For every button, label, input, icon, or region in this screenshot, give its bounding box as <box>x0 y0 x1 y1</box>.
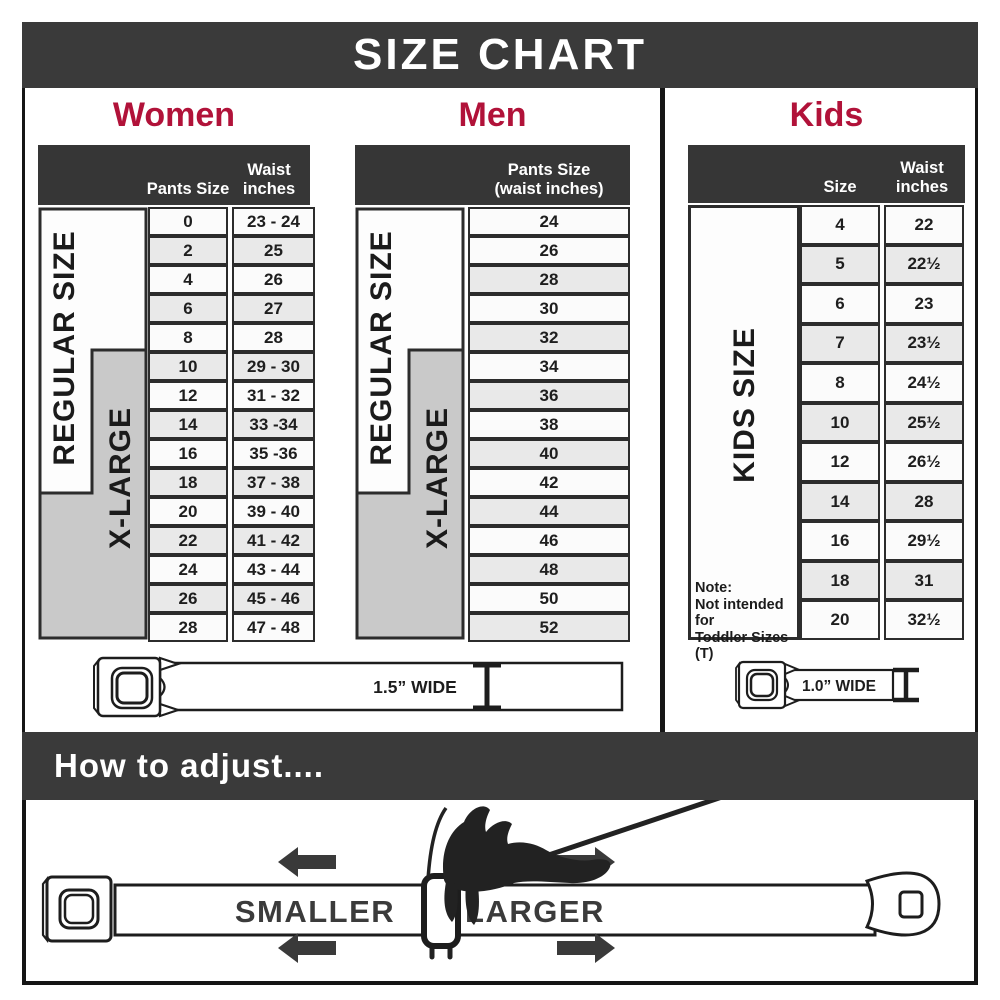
kids-col-size: Size <box>800 178 880 197</box>
how-to-adjust-bar: How to adjust.... <box>22 732 978 800</box>
women-col-waist: Waistinches <box>228 161 310 199</box>
pants-size-cell: 50 <box>468 584 630 613</box>
kids-waist-line1: Waist <box>900 159 943 177</box>
waist-cell: 41 - 42 <box>232 526 315 555</box>
table-row: 1629½ <box>800 521 964 561</box>
waist-cell: 37 - 38 <box>232 468 315 497</box>
waist-cell: 25½ <box>884 403 964 443</box>
adjust-illustration: SMALLER LARGER <box>22 800 978 981</box>
pants-size-cell: 34 <box>468 352 630 381</box>
table-row: 828 <box>148 323 315 352</box>
table-row: 1837 - 38 <box>148 468 315 497</box>
pants-size-cell: 52 <box>468 613 630 642</box>
waist-cell: 25 <box>232 236 315 265</box>
kids-table-header: Size Waistinches <box>688 145 965 203</box>
table-row: 627 <box>148 294 315 323</box>
waist-cell: 43 - 44 <box>232 555 315 584</box>
table-row: 2847 - 48 <box>148 613 315 642</box>
table-row: 1428 <box>800 482 964 522</box>
table-row: 1433 -34 <box>148 410 315 439</box>
kids-width-measure-icon <box>893 670 919 700</box>
kids-note: Note: Not intended for Toddler Sizes (T) <box>695 580 799 663</box>
waist-cell: 39 - 40 <box>232 497 315 526</box>
men-col-pants-size: Pants Size(waist inches) <box>468 161 630 199</box>
waist-cell: 32½ <box>884 600 964 640</box>
table-row: 723½ <box>800 324 964 364</box>
pants-size-cell: 38 <box>468 410 630 439</box>
arrow-right-bottom-icon <box>557 933 615 963</box>
waist-cell: 22 <box>884 205 964 245</box>
table-row: 1029 - 30 <box>148 352 315 381</box>
waist-cell: 22½ <box>884 245 964 285</box>
waist-cell: 24½ <box>884 363 964 403</box>
size-cell: 5 <box>800 245 880 285</box>
kids-col-waist: Waistinches <box>882 159 962 197</box>
hand-silhouette <box>443 806 610 891</box>
pants-size-cell: 44 <box>468 497 630 526</box>
women-xlarge-label: X-LARGE <box>104 407 138 549</box>
table-row: 426 <box>148 265 315 294</box>
table-row: 36 <box>468 381 630 410</box>
table-row: 2032½ <box>800 600 964 640</box>
pants-size-cell: 2 <box>148 236 228 265</box>
kids-size-label: KIDS SIZE <box>728 327 762 483</box>
pants-size-cell: 20 <box>148 497 228 526</box>
waist-cell: 35 -36 <box>232 439 315 468</box>
waist-cell: 23 - 24 <box>232 207 315 236</box>
size-cell: 16 <box>800 521 880 561</box>
kids-note-title: Note: <box>695 580 799 597</box>
size-cell: 10 <box>800 403 880 443</box>
table-row: 1635 -36 <box>148 439 315 468</box>
women-section-label: Women <box>38 94 310 136</box>
table-row: 422 <box>800 205 964 245</box>
kids-waist-line2: inches <box>896 178 948 196</box>
table-row: 24 <box>468 207 630 236</box>
larger-label: LARGER <box>465 894 605 929</box>
adult-belt-width-label: 1.5” WIDE <box>373 677 457 697</box>
table-row: 623 <box>800 284 964 324</box>
pants-size-cell: 10 <box>148 352 228 381</box>
table-row: 522½ <box>800 245 964 285</box>
pants-size-cell: 36 <box>468 381 630 410</box>
table-row: 1226½ <box>800 442 964 482</box>
pants-size-cell: 48 <box>468 555 630 584</box>
table-row: 30 <box>468 294 630 323</box>
size-cell: 4 <box>800 205 880 245</box>
kids-section-divider <box>660 88 665 732</box>
panel-left-border <box>22 88 25 732</box>
waist-cell: 28 <box>232 323 315 352</box>
pants-size-cell: 28 <box>148 613 228 642</box>
belt-tongue-slot <box>900 892 922 917</box>
waist-cell: 27 <box>232 294 315 323</box>
men-section-label: Men <box>355 94 630 136</box>
table-row: 40 <box>468 439 630 468</box>
kids-belt-width-label: 1.0” WIDE <box>802 678 876 695</box>
size-chart-page: SIZE CHART Women Men Kids Pants Size Wai… <box>0 0 1000 1000</box>
table-row: 2443 - 44 <box>148 555 315 584</box>
women-table-header: Pants Size Waistinches <box>38 145 310 205</box>
panel-right-border <box>975 88 978 732</box>
waist-cell: 31 - 32 <box>232 381 315 410</box>
pants-size-cell: 4 <box>148 265 228 294</box>
pants-size-cell: 46 <box>468 526 630 555</box>
men-rows: 242628303234363840424446485052 <box>468 207 630 642</box>
size-cell: 6 <box>800 284 880 324</box>
size-cell: 18 <box>800 561 880 601</box>
pants-size-cell: 16 <box>148 439 228 468</box>
pants-size-cell: 24 <box>468 207 630 236</box>
size-cell: 14 <box>800 482 880 522</box>
table-row: 2039 - 40 <box>148 497 315 526</box>
table-row: 26 <box>468 236 630 265</box>
pants-size-cell: 22 <box>148 526 228 555</box>
kids-rows: 422522½623723½824½1025½1226½14281629½183… <box>800 205 964 640</box>
pants-size-cell: 14 <box>148 410 228 439</box>
pants-size-cell: 26 <box>148 584 228 613</box>
pants-size-cell: 0 <box>148 207 228 236</box>
men-table-header: Pants Size(waist inches) <box>355 145 630 205</box>
table-row: 2645 - 46 <box>148 584 315 613</box>
pants-size-cell: 26 <box>468 236 630 265</box>
table-row: 44 <box>468 497 630 526</box>
how-to-adjust-title: How to adjust.... <box>54 747 324 785</box>
table-row: 023 - 24 <box>148 207 315 236</box>
size-cell: 12 <box>800 442 880 482</box>
men-header-line2: (waist inches) <box>494 180 603 198</box>
pants-size-cell: 18 <box>148 468 228 497</box>
waist-cell: 29 - 30 <box>232 352 315 381</box>
waist-line1: Waist <box>247 161 290 179</box>
men-header-line1: Pants Size <box>508 161 591 179</box>
table-row: 42 <box>468 468 630 497</box>
table-row: 46 <box>468 526 630 555</box>
pants-size-cell: 32 <box>468 323 630 352</box>
table-row: 225 <box>148 236 315 265</box>
adult-belt-illustration: 1.5” WIDE <box>40 648 640 728</box>
waist-line2: inches <box>243 180 295 198</box>
table-row: 32 <box>468 323 630 352</box>
table-row: 1831 <box>800 561 964 601</box>
table-row: 1231 - 32 <box>148 381 315 410</box>
pants-size-cell: 28 <box>468 265 630 294</box>
arrow-left-top-icon <box>278 847 336 877</box>
pants-size-cell: 30 <box>468 294 630 323</box>
table-row: 38 <box>468 410 630 439</box>
table-row: 52 <box>468 613 630 642</box>
table-row: 28 <box>468 265 630 294</box>
waist-cell: 47 - 48 <box>232 613 315 642</box>
pants-size-cell: 42 <box>468 468 630 497</box>
waist-cell: 23½ <box>884 324 964 364</box>
kids-note-line1: Not intended for <box>695 597 799 630</box>
smaller-label: SMALLER <box>235 894 395 929</box>
women-col-pants-size: Pants Size <box>146 180 230 199</box>
bottom-bottom-border <box>22 981 978 985</box>
table-row: 50 <box>468 584 630 613</box>
size-cell: 7 <box>800 324 880 364</box>
size-cell: 20 <box>800 600 880 640</box>
kids-belt-illustration: 1.0” WIDE <box>725 652 935 714</box>
table-row: 1025½ <box>800 403 964 443</box>
waist-cell: 26½ <box>884 442 964 482</box>
table-row: 2241 - 42 <box>148 526 315 555</box>
waist-cell: 28 <box>884 482 964 522</box>
women-rows: 023 - 242254266278281029 - 301231 - 3214… <box>148 207 315 642</box>
table-row: 824½ <box>800 363 964 403</box>
waist-cell: 31 <box>884 561 964 601</box>
pants-size-cell: 6 <box>148 294 228 323</box>
page-title: SIZE CHART <box>22 22 978 88</box>
pants-size-cell: 40 <box>468 439 630 468</box>
table-row: 48 <box>468 555 630 584</box>
arrow-left-bottom-icon <box>278 933 336 963</box>
waist-cell: 29½ <box>884 521 964 561</box>
waist-cell: 23 <box>884 284 964 324</box>
men-xlarge-label: X-LARGE <box>421 407 455 549</box>
kids-section-label: Kids <box>688 94 965 136</box>
women-regular-size-label: REGULAR SIZE <box>48 230 82 465</box>
table-row: 34 <box>468 352 630 381</box>
size-cell: 8 <box>800 363 880 403</box>
waist-cell: 26 <box>232 265 315 294</box>
pants-size-cell: 8 <box>148 323 228 352</box>
waist-cell: 45 - 46 <box>232 584 315 613</box>
pants-size-cell: 24 <box>148 555 228 584</box>
men-regular-size-label: REGULAR SIZE <box>365 230 399 465</box>
waist-cell: 33 -34 <box>232 410 315 439</box>
pants-size-cell: 12 <box>148 381 228 410</box>
